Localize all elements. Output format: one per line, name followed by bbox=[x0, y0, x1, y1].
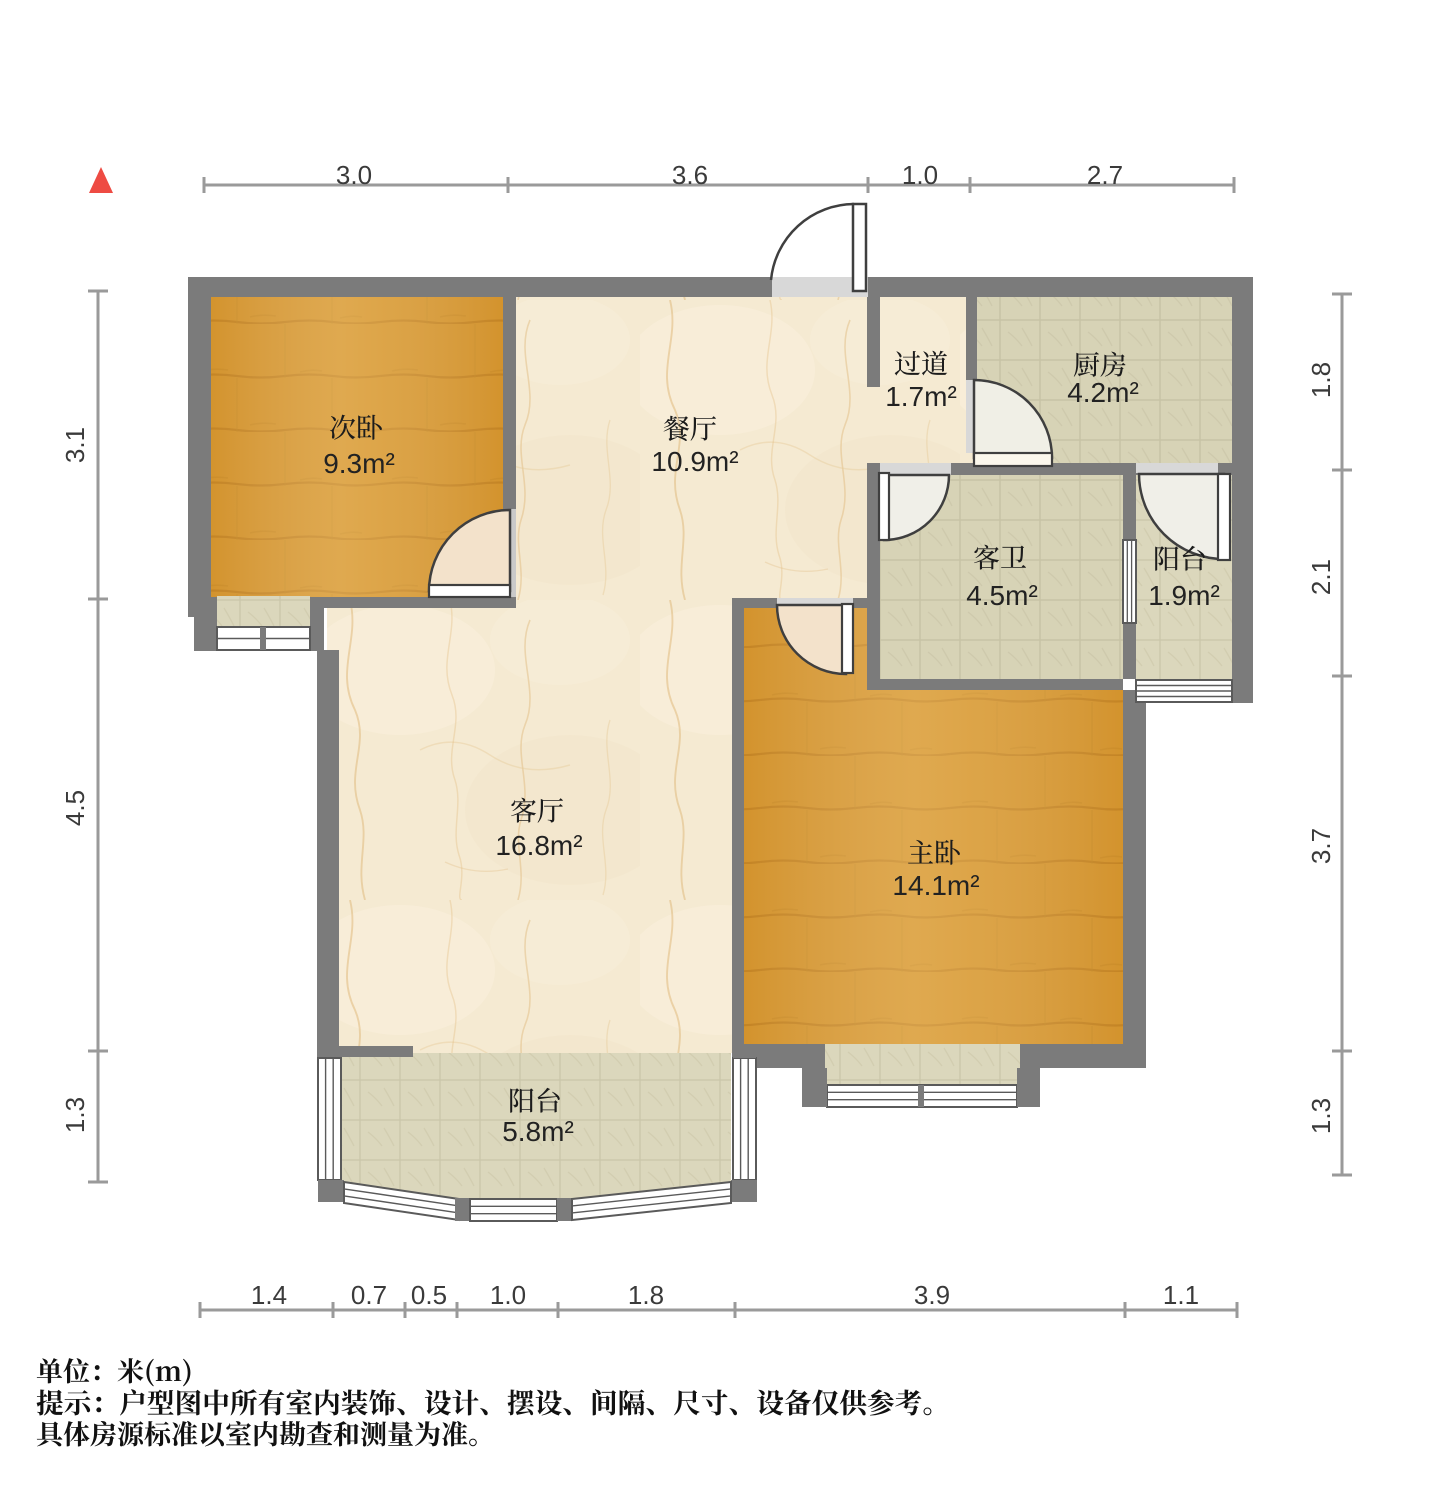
svg-text:1.3: 1.3 bbox=[60, 1097, 90, 1133]
svg-text:16.8m²: 16.8m² bbox=[495, 830, 582, 861]
svg-text:3.9: 3.9 bbox=[914, 1280, 950, 1310]
svg-text:1.8: 1.8 bbox=[628, 1280, 664, 1310]
svg-text:3.6: 3.6 bbox=[672, 160, 708, 190]
svg-text:3.0: 3.0 bbox=[336, 160, 372, 190]
svg-text:1.3: 1.3 bbox=[1306, 1098, 1336, 1134]
svg-text:1.1: 1.1 bbox=[1163, 1280, 1199, 1310]
svg-text:2.7: 2.7 bbox=[1087, 160, 1123, 190]
svg-text:1.0: 1.0 bbox=[902, 160, 938, 190]
svg-text:3.1: 3.1 bbox=[60, 427, 90, 463]
svg-text:14.1m²: 14.1m² bbox=[892, 870, 979, 901]
svg-text:4.2m²: 4.2m² bbox=[1067, 377, 1139, 408]
svg-text:3.7: 3.7 bbox=[1306, 828, 1336, 864]
svg-text:1.7m²: 1.7m² bbox=[885, 381, 957, 412]
svg-text:4.5m²: 4.5m² bbox=[966, 580, 1038, 611]
svg-text:9.3m²: 9.3m² bbox=[323, 448, 395, 479]
svg-text:5.8m²: 5.8m² bbox=[502, 1116, 574, 1147]
svg-text:0.7: 0.7 bbox=[351, 1280, 387, 1310]
svg-text:2.1: 2.1 bbox=[1306, 559, 1336, 595]
svg-text:1.4: 1.4 bbox=[251, 1280, 287, 1310]
svg-text:10.9m²: 10.9m² bbox=[651, 446, 738, 477]
svg-text:1.8: 1.8 bbox=[1306, 362, 1336, 398]
svg-text:1.9m²: 1.9m² bbox=[1148, 580, 1220, 611]
svg-text:1.0: 1.0 bbox=[490, 1280, 526, 1310]
svg-text:0.5: 0.5 bbox=[411, 1280, 447, 1310]
svg-text:4.5: 4.5 bbox=[60, 790, 90, 826]
